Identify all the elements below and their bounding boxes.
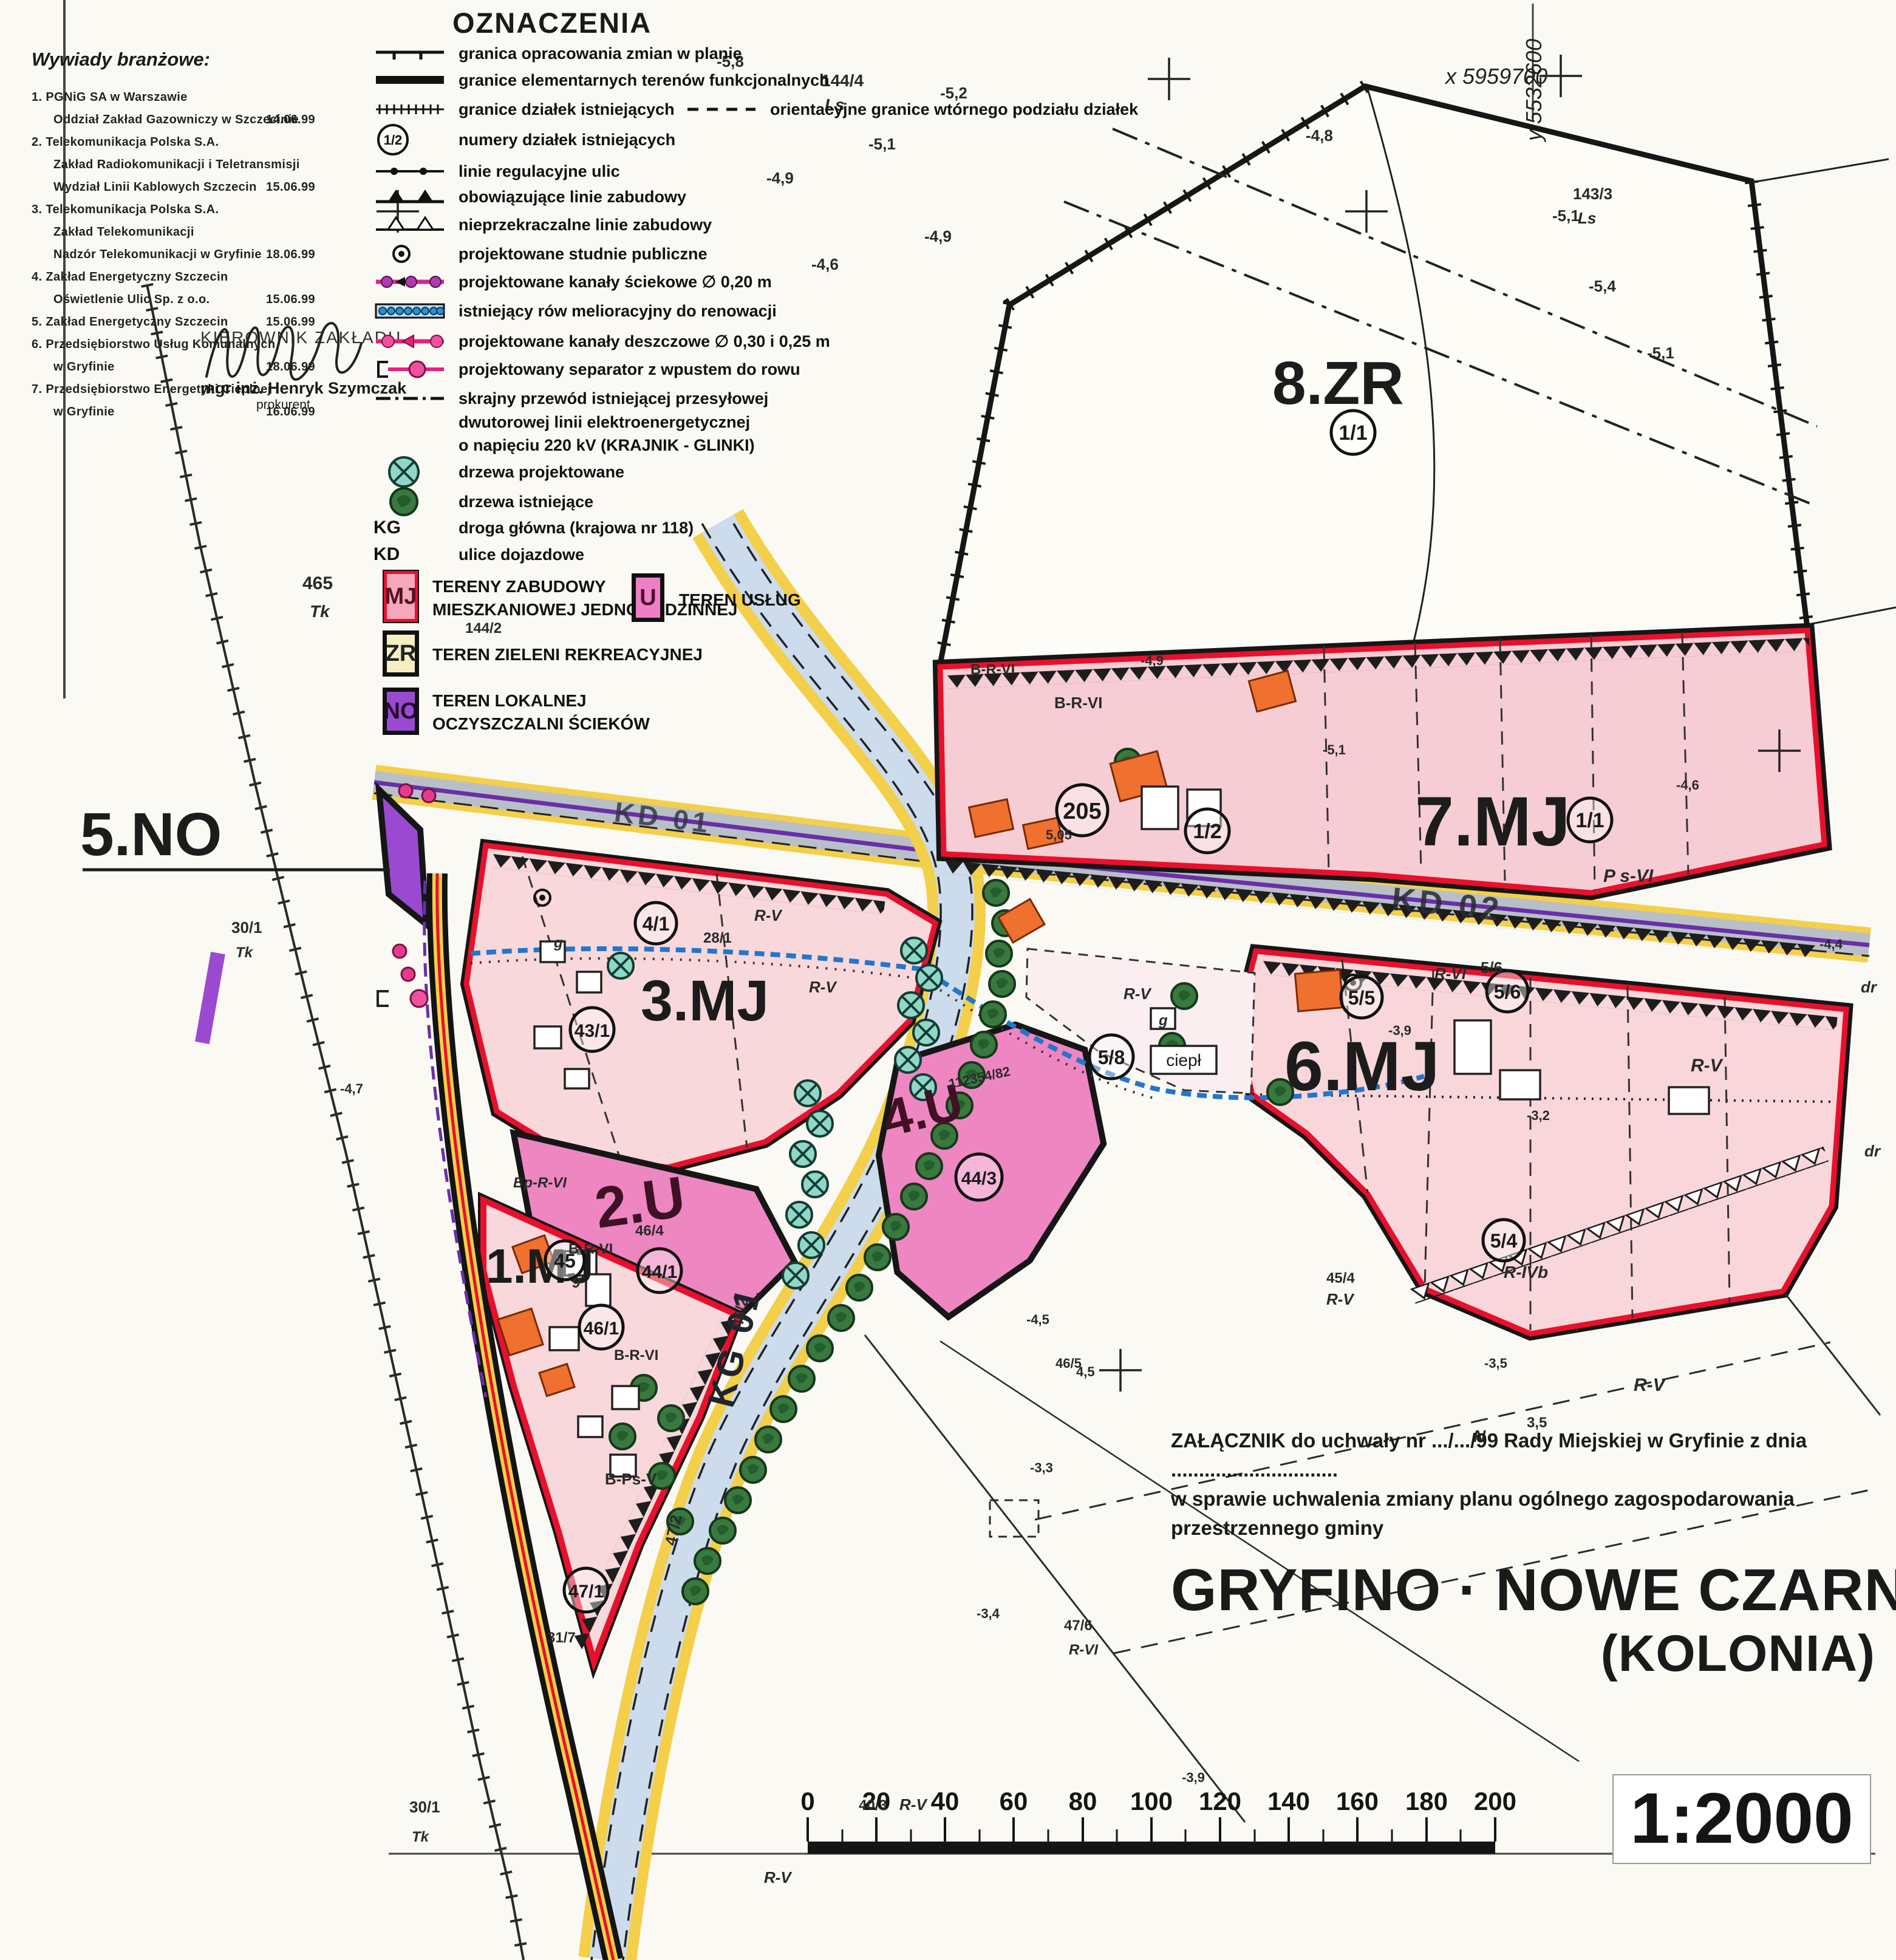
annotation: -3,2 <box>1527 1108 1550 1123</box>
legend-row-separator: projektowany separator z wpustem do rowu <box>373 357 800 381</box>
annotation: -5,4 <box>1589 277 1616 295</box>
survey-date: 18.06.99 <box>266 244 315 266</box>
annotation: R-VI <box>1069 1642 1099 1658</box>
zone-label-3mj: 3.MJ <box>641 969 769 1033</box>
survey-line: 4. Zakład Energetyczny Szczecin <box>32 266 408 289</box>
zone-7mj-group <box>940 630 1824 893</box>
title-line2: w sprawie uchwalenia zmiany planu ogólne… <box>1171 1484 1875 1543</box>
parcel-number: 1/1 <box>1575 809 1604 832</box>
annotation: -3,4 <box>977 1606 1000 1621</box>
legend-row-obowiazujace: obowiązujące linie zabudowy <box>373 185 686 209</box>
annotation: -4,9 <box>766 169 794 187</box>
legend-row-drzewa-istniejace: drzewa istniejące <box>373 486 593 517</box>
survey-line: 1. PGNiG SA w Warszawie <box>32 86 408 109</box>
legend-row-kanaly-deszczowe: projektowane kanały deszczowe ∅ 0,30 i 0… <box>373 329 830 353</box>
annotation: -4,6 <box>811 255 839 273</box>
legend-row-granica-opracowania: granica opracowania zmian w planie <box>373 41 742 66</box>
annotation: 144/2 <box>465 620 502 637</box>
legend-label: skrajny przewód istniejącej przesyłowej <box>459 389 768 408</box>
survey-line: 3. Telekomunikacja Polska S.A. <box>32 199 408 221</box>
legend-zone-no-box: NO <box>383 688 419 735</box>
annotation: 45/4 <box>1326 1270 1355 1286</box>
parcel-46-1: 46/1 <box>579 1305 623 1349</box>
annotation: dr <box>1864 1142 1881 1160</box>
zone-code-no: NO <box>384 698 418 725</box>
parcel-4-1: 4/1 <box>635 903 677 944</box>
parcel-number: 5/5 <box>1348 987 1375 1009</box>
survey-text: Nadzór Telekomunikacji w Gryfinie <box>53 248 262 261</box>
legend-title: OZNACZENIA <box>452 6 652 39</box>
annotation: 5/6 <box>1481 958 1502 977</box>
legend-zone-mj-label1: TERENY ZABUDOWY <box>432 577 606 596</box>
annotation: -4,4 <box>1819 937 1843 952</box>
annotation: 47/6 <box>1064 1617 1093 1634</box>
parcel-5-6: 5/6 <box>1487 971 1528 1012</box>
public-well-icon <box>373 242 446 266</box>
legend-zone-zr-box: ZR <box>383 630 419 677</box>
survey-text: Wydział Linii Kablowych Szczecin <box>53 180 257 194</box>
parcel-47-1: 47/1 <box>564 1568 608 1612</box>
cadastral-ext-2 <box>1809 607 1896 624</box>
parcel-number: 4/1 <box>643 913 669 935</box>
legend-label: drzewa istniejące <box>459 493 593 511</box>
annotation: 465 <box>302 573 333 593</box>
parcel-symbol-text: 1/2 <box>384 132 403 148</box>
legend-label: projektowane kanały deszczowe ∅ 0,30 i 0… <box>459 332 830 351</box>
zone-label-5no: 5.NO <box>80 801 222 869</box>
annotation: -4,9 <box>924 227 952 245</box>
annotation: 143/3 <box>1573 185 1612 203</box>
parcel-number: 43/1 <box>575 1021 610 1041</box>
annotation: 40/3 <box>859 1797 887 1814</box>
legend-zone-no-label2: OCZYSZCZALNI ŚCIEKÓW <box>432 714 650 734</box>
coord-y-label: y 5532600 <box>1521 39 1546 143</box>
survey-line: Zakład Telekomunikacji <box>32 221 408 244</box>
legend-label: nieprzekraczalne linie zabudowy <box>459 216 712 234</box>
annotation: dr <box>1861 978 1878 996</box>
legend-label: projektowane kanały ściekowe ∅ 0,20 m <box>459 273 772 292</box>
survey-line: Wydział Linii Kablowych Szczecin15.06.99 <box>32 176 408 199</box>
annotation: Ls <box>1578 209 1596 227</box>
parcel-number: 5/8 <box>1098 1047 1125 1068</box>
annotation: 28/1 <box>703 930 732 946</box>
annotation: B-R-VI <box>1054 694 1102 712</box>
survey-text: Oddział Zakład Gazowniczy w Szczecinie <box>53 113 299 126</box>
zone-7mj-area <box>940 630 1824 893</box>
annotation: R-V <box>809 978 837 996</box>
parcel-44-1: 44/1 <box>638 1249 681 1292</box>
survey-text: Oświetlenie Ulic Sp. z o.o. <box>53 293 210 306</box>
annotation: R-V <box>1691 1056 1724 1076</box>
annotation: R-V <box>899 1795 928 1814</box>
survey-date: 14.06.99 <box>266 109 315 131</box>
legend-row-kd: KD ulice dojazdowe <box>373 544 584 565</box>
parcel-number: 205 <box>1063 799 1101 824</box>
scale-bar-body <box>808 1842 1495 1854</box>
existing-parcel-boundary-icon <box>373 97 446 121</box>
melioration-ditch-icon <box>373 299 446 323</box>
annotation: 46/4 <box>635 1223 664 1239</box>
legend-row-przewod-line3: o napięciu 220 kV (KRAJNIK - GLINKI) <box>459 436 755 455</box>
legend-row-row-melioracyjny: istniejący rów melioracyjny do renowacji <box>373 299 777 323</box>
parcel-43-1: 43/1 <box>570 1008 614 1051</box>
sewer-channel-icon <box>373 270 446 294</box>
annotation: -4,7 <box>340 1081 363 1096</box>
kd-code: KD <box>373 544 446 565</box>
boundary-plan-icon <box>373 41 446 66</box>
survey-line: Oddział Zakład Gazowniczy w Szczecinie14… <box>32 109 408 131</box>
legend-label: granice działek istniejących <box>459 100 675 119</box>
legend-label: projektowany separator z wpustem do rowu <box>459 360 800 379</box>
scale-tick-label: 180 <box>1405 1787 1448 1815</box>
legend-row-przewod-line2: dwutorowej linii elektroenergetycznej <box>459 413 750 432</box>
scale-tick-label: 120 <box>1199 1787 1241 1815</box>
annotation: g <box>1158 1012 1168 1029</box>
existing-tree-icon <box>373 486 446 517</box>
scale-ratio: 1:2000 <box>1630 1778 1853 1859</box>
annotation: -4,9 <box>1141 653 1164 668</box>
annotation: R-V <box>1634 1375 1667 1395</box>
annotation: -5,1 <box>1647 344 1674 362</box>
legend-zone-zr-label: TEREN ZIELENI REKREACYJNEJ <box>432 645 703 664</box>
scale-tick-label: 140 <box>1267 1787 1310 1815</box>
annotation: 30/1 <box>409 1798 440 1816</box>
title-line1: ZAŁĄCZNIK do uchwały nr .../.../99 Rady … <box>1171 1426 1875 1484</box>
annotation: -4,8 <box>1306 126 1333 145</box>
annotation: R-V <box>764 1868 793 1887</box>
annotation: Tk <box>310 602 330 621</box>
legend-row-kanaly-sciekowe: projektowane kanały ściekowe ∅ 0,20 m <box>373 270 772 294</box>
annotation: B-R-VI <box>614 1347 658 1364</box>
no-sliver <box>195 952 225 1044</box>
legend-row-przewod-220kv: skrajny przewód istniejącej przesyłowej <box>373 386 768 411</box>
legend-row-orientacyjne: orientacyjne granice wtórnego podziału d… <box>685 97 1138 121</box>
annotation: R-V <box>754 906 783 924</box>
storm-drain-icon <box>373 329 446 353</box>
annotation: B-Ps-V <box>605 1470 657 1488</box>
annotation: 9 <box>572 1275 581 1291</box>
zone-code-zr: ZR <box>386 641 417 667</box>
annotation: Tk <box>236 944 254 961</box>
parcel-1-2: 1/2 <box>1185 809 1229 853</box>
annotation: -3,9 <box>1182 1770 1205 1785</box>
legend-zone-no-label1: TEREN LOKALNEJ <box>432 691 587 711</box>
survey-text: w Gryfinie <box>53 405 115 418</box>
annotation: -4,6 <box>1676 777 1699 793</box>
survey-line: Zakład Radiokomunikacji i Teletransmisji <box>32 154 408 176</box>
annotation: 31/7 <box>547 1630 576 1646</box>
annotation: -3,5 <box>1484 1356 1507 1371</box>
annotation: -5,1 <box>868 135 896 153</box>
legend-row-numery-dzialek: 1/2 numery działek istniejących <box>373 121 675 158</box>
survey-line: Nadzór Telekomunikacji w Gryfinie18.06.9… <box>32 244 408 266</box>
zone-5no-area <box>379 790 426 924</box>
parcel-5-8: 5/8 <box>1090 1035 1133 1079</box>
parcel-number: 44/1 <box>642 1262 677 1282</box>
legend-row-linie-regulacyjne: linie regulacyjne ulic <box>373 159 620 183</box>
annotation: -4,5 <box>1026 1312 1049 1327</box>
power-line-icon <box>373 386 446 411</box>
scale-tick-label: 60 <box>1000 1787 1028 1815</box>
zone-label-7mj: 7.MJ <box>1415 783 1570 861</box>
zone-label-6mj: 6.MJ <box>1284 1028 1440 1105</box>
legend-label: orientacyjne granice wtórnego podziału d… <box>770 100 1138 119</box>
mandatory-building-line-icon <box>373 185 446 209</box>
annotation: B-R-VI <box>970 661 1015 678</box>
legend-label: obowiązujące linie zabudowy <box>459 188 686 207</box>
annotation: B-R-VI <box>568 1241 613 1257</box>
functional-boundary-icon <box>373 68 446 92</box>
parcel-5-5: 5/5 <box>1341 977 1382 1018</box>
ciepl-label: ciepł <box>1166 1051 1201 1070</box>
surveys-title: Wywiady branżowe: <box>32 49 408 70</box>
survey-text: w Gryfinie <box>53 360 115 374</box>
survey-line: Oświetlenie Ulic Sp. z o.o.15.06.99 <box>32 289 408 311</box>
survey-date: 15.06.99 <box>266 289 315 311</box>
annotation: 30/1 <box>231 918 262 937</box>
annotation: -5,1 <box>1323 742 1346 757</box>
scale-tick-label: 160 <box>1336 1787 1379 1815</box>
legend-row-drzewa-projektowane: drzewa projektowane <box>373 454 624 490</box>
annotation: 4,5 <box>1076 1364 1095 1379</box>
legend-row-kg: KG droga główna (krajowa nr 118) <box>373 517 694 538</box>
legend-label: granica opracowania zmian w planie <box>459 44 742 63</box>
parcel-number: 1/1 <box>1338 422 1367 445</box>
street-regulation-icon <box>373 159 446 183</box>
planned-tree-icon <box>373 454 446 490</box>
cadastral-ext-1 <box>1753 159 1889 182</box>
parcel-1-1-7mj: 1/1 <box>1568 798 1612 842</box>
zone-label-8zr: 8.ZR <box>1272 349 1404 417</box>
legend-label: numery działek istniejących <box>459 131 675 149</box>
annotation: 5,05 <box>1046 827 1072 842</box>
parcel-number-icon: 1/2 <box>373 121 446 158</box>
annotation: R-V <box>1124 985 1152 1003</box>
parcel-number: 44/3 <box>961 1169 997 1189</box>
road-label-kd01: KD 01 <box>613 796 714 839</box>
legend-label: ulice dojazdowe <box>459 545 584 564</box>
parcel-5-4: 5/4 <box>1483 1220 1524 1261</box>
legend-zone-u-box: U <box>632 573 664 622</box>
legend-label: droga główna (krajowa nr 118) <box>459 519 694 538</box>
zone-code-u: U <box>639 585 656 611</box>
scale-tick-label: 80 <box>1069 1787 1097 1815</box>
annotation: g <box>553 935 563 951</box>
parcel-number: 46/1 <box>584 1319 619 1339</box>
legend-row-studnie: projektowane studnie publiczne <box>373 242 708 266</box>
scale-tick-label: 100 <box>1130 1787 1173 1815</box>
scale-bar: 0 20 40 60 80 100 120 140 160 180 200 1:… <box>800 1775 1870 1863</box>
legend-row-granice-dzialek: granice działek istniejących <box>373 97 675 121</box>
annotation: -5,1 <box>1552 207 1580 225</box>
plan-sheet: 0 20 40 60 80 100 120 140 160 180 200 1:… <box>0 0 1896 1960</box>
ciepl-box: ciepł <box>1151 1046 1216 1074</box>
secondary-division-icon <box>685 97 758 121</box>
scale-tick-label: 0 <box>800 1787 814 1815</box>
legend-zone-mj-box: MJ <box>383 570 419 623</box>
scale-tick-label: 200 <box>1474 1787 1516 1815</box>
zone-code-mj: MJ <box>385 584 417 610</box>
annotation: R-IVb <box>1504 1263 1548 1282</box>
annotation: P s-VI <box>1603 866 1654 886</box>
annotation: -3,9 <box>1388 1023 1411 1038</box>
annotation: R-VI <box>1434 965 1467 983</box>
legend-label: granice elementarnych terenów funkcjonal… <box>459 71 830 90</box>
legend-label: istniejący rów melioracyjny do renowacji <box>459 302 777 321</box>
legend-label: linie regulacyjne ulic <box>459 162 620 181</box>
legend-row-granice-terenow: granice elementarnych terenów funkcjonal… <box>373 68 830 92</box>
scale-tick-label: 40 <box>931 1787 960 1815</box>
legend-label: drzewa projektowane <box>459 463 624 482</box>
legend-row-nieprzekraczalne: nieprzekraczalne linie zabudowy <box>373 213 712 237</box>
separator-icon <box>373 357 446 381</box>
parcel-number: 5/4 <box>1490 1230 1518 1252</box>
plan-subtitle: (KOLONIA) <box>1171 1624 1875 1683</box>
cad-5 <box>1784 1292 1880 1415</box>
survey-date: 15.06.99 <box>266 176 315 199</box>
parcel-number: 1/2 <box>1193 820 1221 843</box>
parcel-number: 47/1 <box>568 1582 604 1602</box>
parcel-number: 5/6 <box>1494 981 1521 1003</box>
annotation: R-V <box>1326 1290 1355 1308</box>
annotation: Tk <box>412 1829 430 1845</box>
plan-title: GRYFINO · NOWE CZARNOWO <box>1171 1556 1875 1624</box>
annotation: Bp-R-VI <box>513 1175 567 1191</box>
parcel-44-3: 44/3 <box>956 1154 1002 1200</box>
title-block: ZAŁĄCZNIK do uchwały nr .../.../99 Rady … <box>1171 1426 1875 1683</box>
legend-label: projektowane studnie publiczne <box>459 245 708 264</box>
parcel-1-1-8zr: 1/1 <box>1331 411 1375 454</box>
kg-code: KG <box>373 517 446 538</box>
max-building-line-icon <box>373 213 446 237</box>
annotation: -3,3 <box>1030 1460 1053 1475</box>
survey-line: 2. Telekomunikacja Polska S.A. <box>32 131 408 154</box>
legend-zone-u-label: TEREN USŁUG <box>679 590 801 610</box>
